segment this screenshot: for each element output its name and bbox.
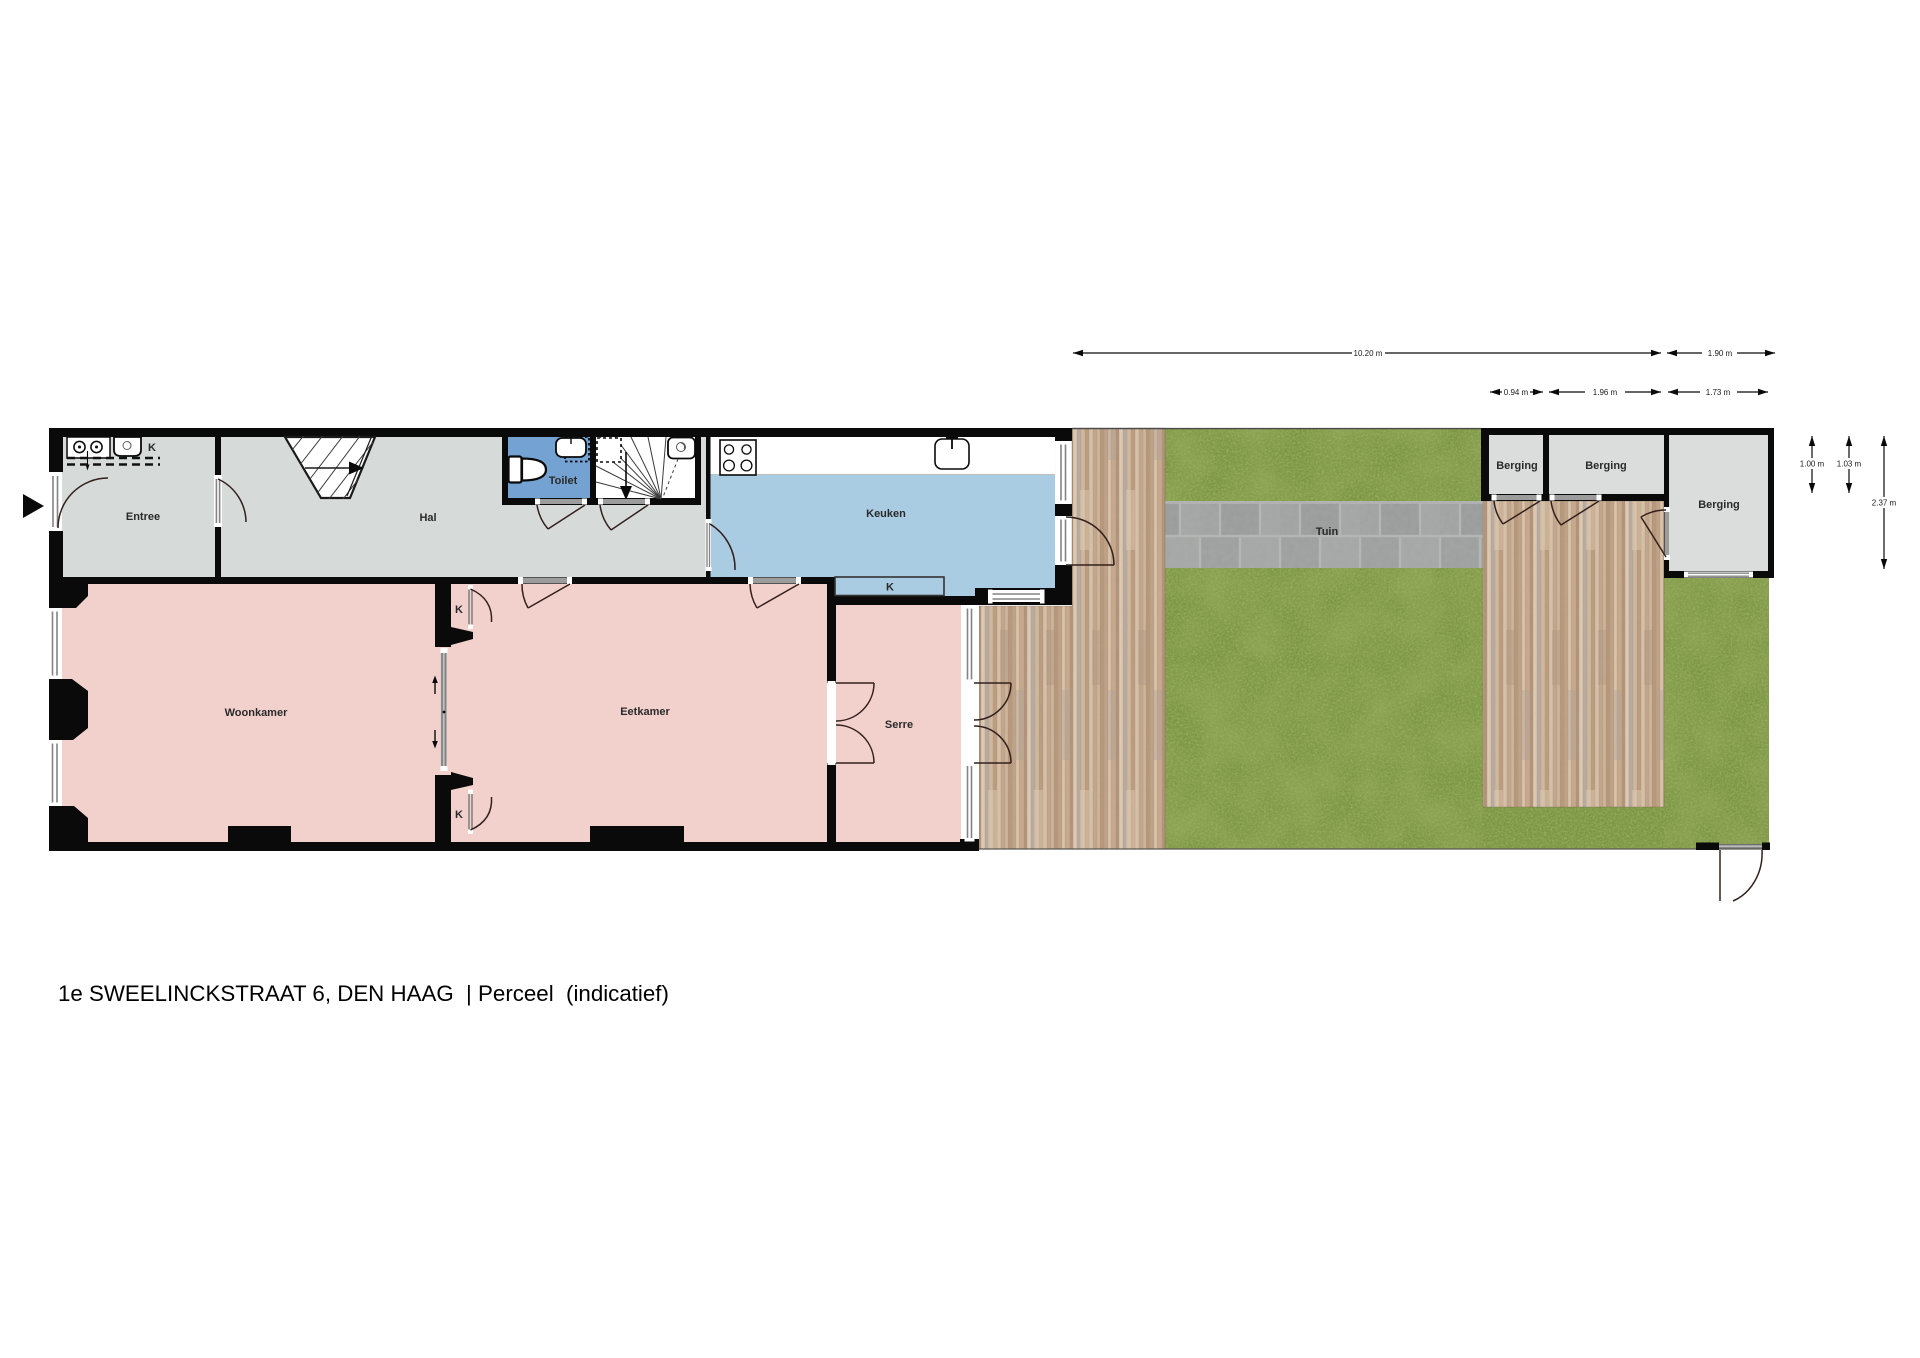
svg-text:1.96 m: 1.96 m	[1593, 388, 1618, 397]
svg-text:Hal: Hal	[419, 512, 436, 524]
svg-text:10.20 m: 10.20 m	[1354, 349, 1383, 358]
svg-text:K: K	[455, 809, 463, 821]
svg-text:1.90 m: 1.90 m	[1708, 349, 1733, 358]
svg-text:Woonkamer: Woonkamer	[225, 707, 288, 719]
svg-text:1.03 m: 1.03 m	[1837, 460, 1862, 469]
svg-text:K: K	[886, 582, 894, 594]
svg-text:0.94 m: 0.94 m	[1504, 388, 1529, 397]
svg-text:Berging: Berging	[1585, 460, 1627, 472]
svg-text:K: K	[148, 442, 156, 454]
svg-text:Eetkamer: Eetkamer	[620, 706, 670, 718]
svg-text:1.73 m: 1.73 m	[1706, 388, 1731, 397]
svg-text:Entree: Entree	[126, 511, 160, 523]
svg-text:Berging: Berging	[1698, 499, 1740, 511]
svg-text:Toilet: Toilet	[549, 475, 578, 487]
svg-text:Berging: Berging	[1496, 460, 1538, 472]
svg-text:Keuken: Keuken	[866, 508, 906, 520]
svg-text:Tuin: Tuin	[1316, 526, 1339, 538]
svg-text:1.00 m: 1.00 m	[1800, 460, 1825, 469]
svg-text:1e SWEELINCKSTRAAT 6, DEN HAAG: 1e SWEELINCKSTRAAT 6, DEN HAAG | Perceel…	[58, 981, 669, 1006]
svg-text:2.37 m: 2.37 m	[1872, 499, 1897, 508]
svg-text:Serre: Serre	[885, 719, 913, 731]
svg-text:K: K	[455, 604, 463, 616]
